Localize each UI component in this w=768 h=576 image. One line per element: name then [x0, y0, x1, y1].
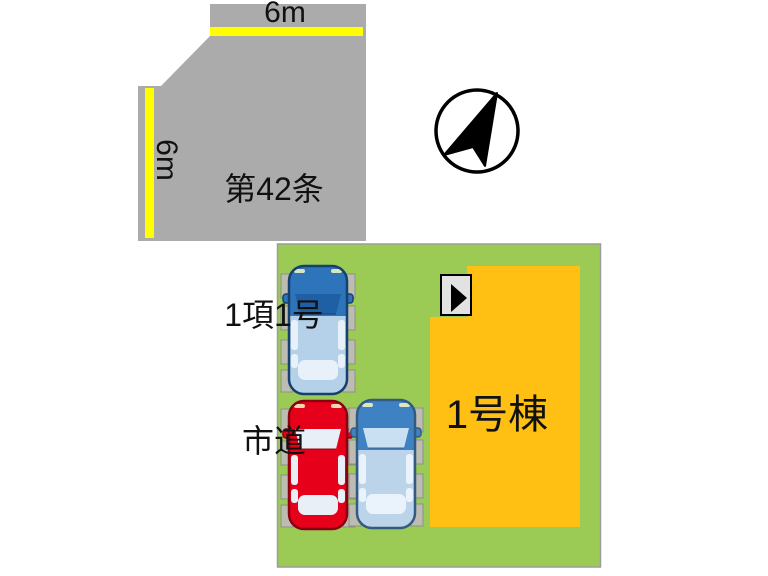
road-width-left-label: 6m — [149, 120, 183, 200]
entrance-marker — [441, 275, 471, 315]
road-name-line1: 第42条 — [184, 168, 364, 210]
site-plan-drawing — [0, 0, 768, 576]
site-plan: 6m 6m 第42条 1項1号 市道 1号棟 — [0, 0, 768, 576]
north-arrow-icon — [436, 90, 518, 172]
road-name-line3: 市道 — [184, 420, 364, 462]
road-name-label: 第42条 1項1号 市道 — [184, 84, 364, 546]
road-width-top-label: 6m — [245, 0, 325, 29]
road-name-line2: 1項1号 — [184, 294, 364, 336]
building-label: 1号棟 — [417, 392, 577, 438]
